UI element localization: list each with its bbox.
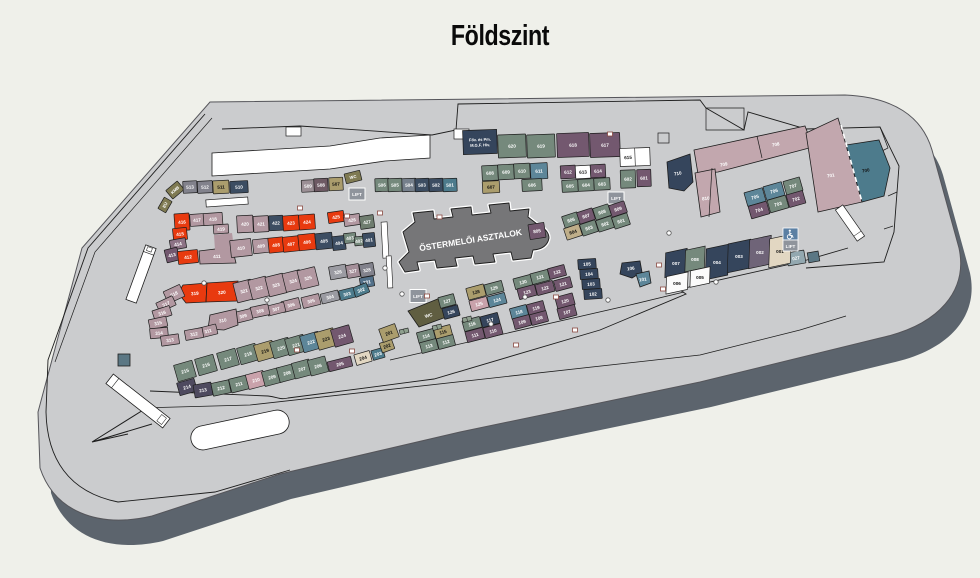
svg-text:612: 612 [564,169,572,174]
svg-text:008: 008 [691,257,699,262]
svg-text:615: 615 [624,155,632,160]
svg-text:607: 607 [487,184,495,189]
svg-text:512: 512 [201,184,209,189]
svg-text:507: 507 [332,181,340,186]
svg-text:402: 402 [355,238,364,244]
svg-text:611: 611 [535,168,543,173]
svg-text:LIFT: LIFT [413,294,423,299]
svg-text:420: 420 [241,221,249,226]
svg-text:506: 506 [378,183,386,188]
svg-text:605: 605 [566,183,574,188]
svg-text:005: 005 [696,275,704,280]
svg-text:511: 511 [217,184,225,189]
svg-text:411: 411 [213,254,221,259]
svg-text:601: 601 [640,176,648,181]
svg-text:LIFT: LIFT [352,192,362,197]
svg-text:503: 503 [418,183,426,188]
svg-text:408: 408 [272,242,281,248]
svg-text:314: 314 [155,330,164,336]
svg-text:410: 410 [237,245,246,251]
svg-text:505: 505 [391,183,399,188]
svg-text:424: 424 [303,219,311,225]
svg-text:422: 422 [272,220,280,225]
svg-text:407: 407 [287,241,296,247]
svg-text:618: 618 [569,143,577,148]
svg-text:609: 609 [502,169,510,174]
svg-text:LIFT: LIFT [786,244,796,249]
svg-text:614: 614 [594,168,602,173]
svg-text:104: 104 [585,271,593,277]
svg-text:403: 403 [346,235,355,241]
svg-text:415: 415 [176,231,185,237]
svg-text:606: 606 [528,182,536,187]
svg-text:406: 406 [303,239,312,245]
svg-text:501: 501 [446,183,454,188]
svg-text:617: 617 [601,143,609,148]
svg-text:320: 320 [218,290,227,296]
svg-text:Földszint: Földszint [451,18,550,51]
svg-text:504: 504 [405,183,413,188]
svg-text:620: 620 [508,144,516,149]
svg-text:006: 006 [673,281,681,286]
svg-text:423: 423 [287,220,295,226]
svg-text:419: 419 [217,226,225,232]
svg-text:610: 610 [518,168,526,173]
svg-text:002: 002 [756,250,764,255]
svg-text:102: 102 [589,291,597,297]
svg-text:513: 513 [186,184,194,189]
svg-text:602: 602 [624,177,632,182]
svg-text:510: 510 [235,184,243,189]
svg-text:319: 319 [191,291,200,297]
svg-text:004: 004 [713,260,721,265]
svg-text:608: 608 [486,170,494,175]
svg-text:509: 509 [304,183,312,188]
svg-text:418: 418 [209,216,217,222]
svg-text:M.G.F. Hiv.: M.G.F. Hiv. [470,142,490,148]
svg-text:619: 619 [537,144,545,149]
svg-text:613: 613 [579,169,587,174]
svg-text:003: 003 [735,254,743,259]
svg-text:103: 103 [587,281,595,287]
svg-text:409: 409 [257,243,266,249]
svg-text:508: 508 [317,182,325,187]
svg-text:401: 401 [365,237,374,243]
svg-text:404: 404 [335,240,344,246]
svg-text:421: 421 [257,221,265,226]
svg-text:604: 604 [582,182,590,187]
svg-text:412: 412 [184,254,193,260]
svg-text:417: 417 [193,217,201,223]
svg-text:007: 007 [672,261,680,266]
svg-text:416: 416 [178,219,186,225]
svg-text:502: 502 [432,183,440,188]
svg-text:603: 603 [598,181,606,186]
svg-text:405: 405 [320,238,329,244]
svg-text:LIFT: LIFT [611,196,621,201]
svg-text:105: 105 [583,261,591,267]
